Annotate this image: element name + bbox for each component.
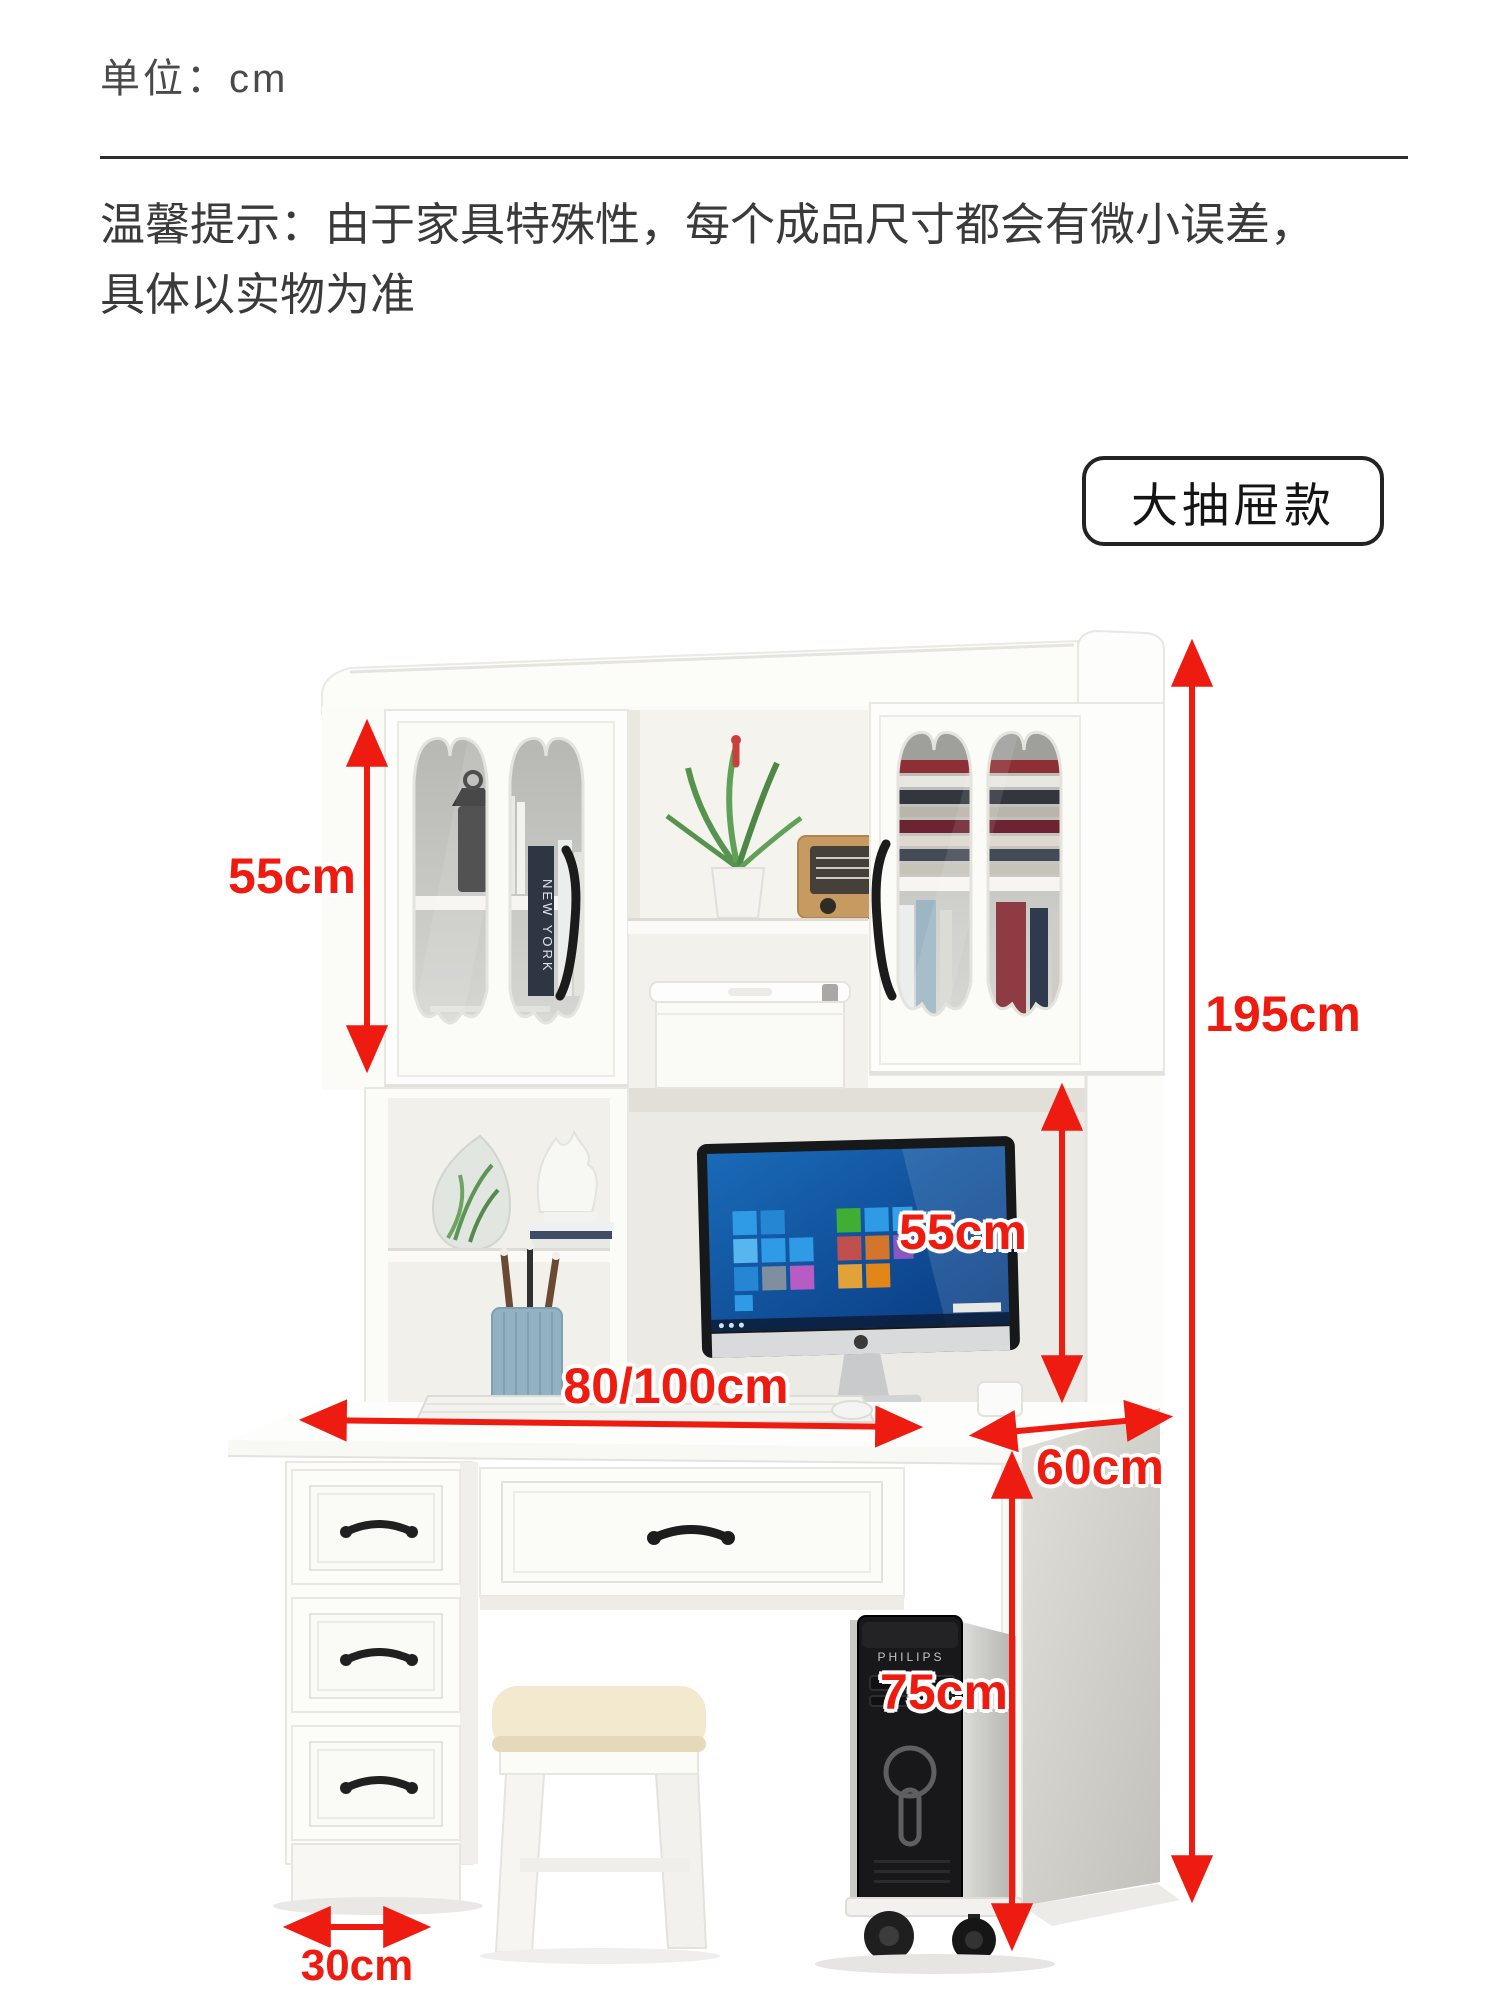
arrow-desk-depth (976, 1417, 1166, 1435)
dim-label-desk-width: 80/100cm (563, 1357, 788, 1415)
dim-label-monitor-space-height: 55cm (899, 1203, 1027, 1261)
dim-label-left-cabinet-height: 55cm (228, 847, 356, 905)
dim-label-pedestal-width: 30cm (301, 1941, 414, 1991)
product-dimension-page: 单位：cm 温馨提示：由于家具特殊性，每个成品尺寸都会有微小误差， 具体以实物为… (0, 0, 1500, 2003)
dim-label-total-height: 195cm (1205, 985, 1361, 1043)
dim-label-desk-depth: 60cm (1036, 1438, 1164, 1496)
arrow-desk-width (306, 1420, 916, 1427)
dim-label-desk-height: 75cm (880, 1663, 1008, 1721)
